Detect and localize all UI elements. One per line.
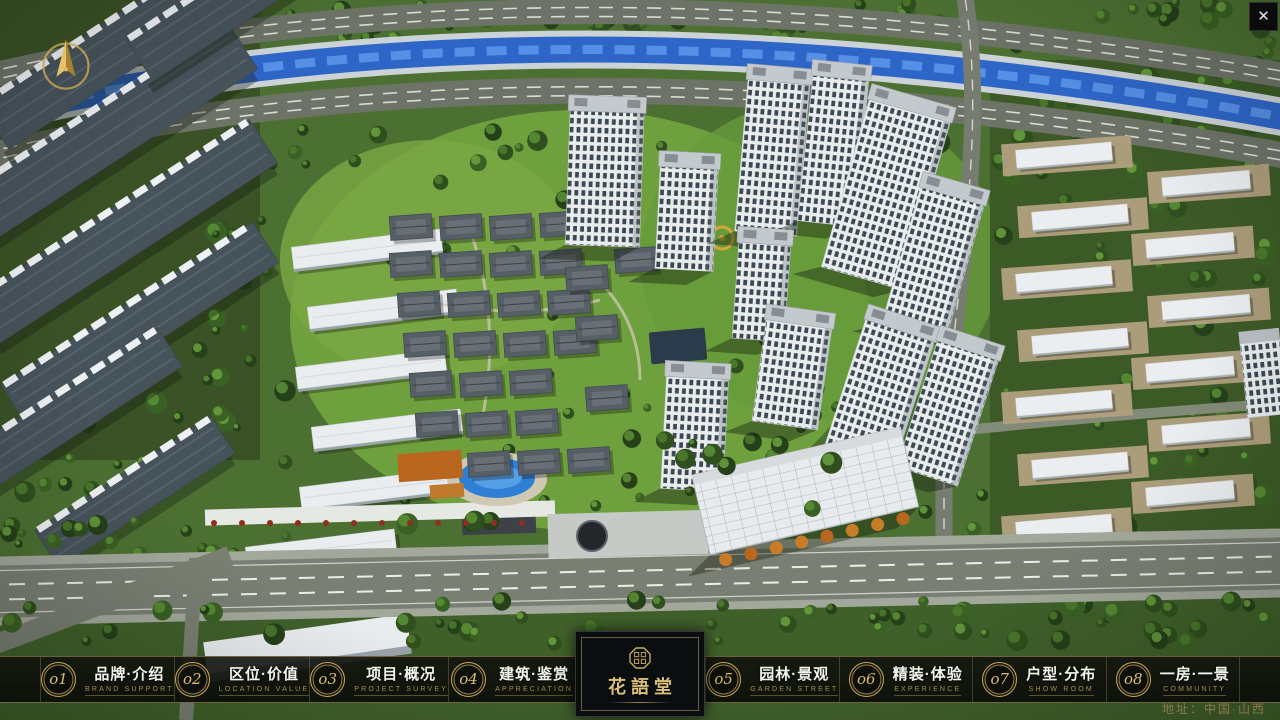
menu-group-left: o1 品牌·介绍 BRAND SUPPORT o2 区位·价值 LOCATION… — [0, 657, 575, 702]
sales-presentation-screen: ✕ o1 品牌·介绍 BRAND SUPPORT o2 区位·价值 LOCATI… — [0, 0, 1280, 720]
menu-subtitle: GARDEN STREET — [750, 686, 838, 696]
menu-number-badge: o2 — [175, 662, 210, 697]
menu-item-garden[interactable]: o5 园林·景观 GARDEN STREET — [705, 657, 839, 702]
menu-number-badge: o8 — [1116, 662, 1151, 697]
menu-number: o2 — [183, 670, 202, 688]
menu-number: o7 — [990, 670, 1009, 688]
menu-group-right: o5 园林·景观 GARDEN STREET o6 精装·体验 EXPERIEN… — [705, 657, 1280, 702]
menu-title: 一房·一景 — [1160, 663, 1230, 684]
menu-number: o1 — [49, 670, 68, 688]
menu-number-badge: o7 — [982, 662, 1017, 697]
menu-subtitle: EXPERIENCE — [894, 686, 961, 696]
menu-text: 建筑·鉴赏 APPRECIATION — [495, 663, 573, 696]
menu-number-badge: o6 — [849, 662, 884, 697]
menu-title: 精装·体验 — [893, 663, 963, 684]
bottom-menu-bar: o1 品牌·介绍 BRAND SUPPORT o2 区位·价值 LOCATION… — [0, 656, 1280, 703]
menu-number: o5 — [714, 670, 733, 688]
menu-text: 项目·概况 PROJECT SURVEY — [354, 663, 448, 696]
menu-item-project[interactable]: o3 项目·概况 PROJECT SURVEY — [309, 657, 448, 702]
menu-text: 品牌·介绍 BRAND SUPPORT — [85, 663, 174, 696]
menu-title: 品牌·介绍 — [94, 663, 164, 684]
menu-item-interior[interactable]: o6 精装·体验 EXPERIENCE — [839, 657, 973, 702]
menu-number: o4 — [459, 670, 478, 688]
menu-subtitle: LOCATION VALUE — [219, 686, 309, 696]
menu-item-location[interactable]: o2 区位·价值 LOCATION VALUE — [174, 657, 309, 702]
menu-subtitle: BRAND SUPPORT — [85, 686, 174, 696]
menu-text: 精装·体验 EXPERIENCE — [893, 663, 963, 696]
aerial-masterplan-render — [0, 0, 1280, 720]
menu-title: 建筑·鉴赏 — [499, 663, 569, 684]
menu-text: 一房·一景 COMMUNITY — [1160, 663, 1230, 696]
project-logo-panel[interactable]: 花語堂 — [575, 631, 705, 717]
menu-title: 户型·分布 — [1026, 663, 1096, 684]
menu-number-badge: o1 — [41, 662, 76, 697]
seal-icon — [628, 646, 652, 670]
menu-number-badge: o3 — [310, 662, 345, 697]
menu-subtitle: COMMUNITY — [1163, 686, 1226, 696]
menu-item-views[interactable]: o8 一房·一景 COMMUNITY — [1106, 657, 1241, 702]
logo-frame: 花語堂 — [581, 637, 699, 711]
project-address: 地址：中国·山西 — [1162, 700, 1266, 717]
menu-subtitle: APPRECIATION — [495, 686, 573, 696]
menu-number: o8 — [1124, 670, 1143, 688]
menu-item-brand[interactable]: o1 品牌·介绍 BRAND SUPPORT — [40, 657, 174, 702]
menu-number-badge: o5 — [706, 662, 741, 697]
close-icon: ✕ — [1257, 9, 1270, 24]
logo-name: 花語堂 — [608, 673, 677, 699]
menu-number-badge: o4 — [451, 662, 486, 697]
menu-title: 项目·概况 — [366, 663, 436, 684]
menu-text: 园林·景观 GARDEN STREET — [750, 663, 838, 696]
menu-subtitle: SHOW ROOM — [1029, 686, 1094, 696]
menu-item-architecture[interactable]: o4 建筑·鉴赏 APPRECIATION — [448, 657, 575, 702]
menu-title: 园林·景观 — [759, 663, 829, 684]
close-button[interactable]: ✕ — [1249, 2, 1278, 31]
north-compass-icon — [36, 34, 96, 94]
menu-text: 区位·价值 LOCATION VALUE — [219, 663, 309, 696]
menu-text: 户型·分布 SHOW ROOM — [1026, 663, 1096, 696]
menu-number: o3 — [318, 670, 337, 688]
menu-title: 区位·价值 — [229, 663, 299, 684]
menu-subtitle: PROJECT SURVEY — [354, 686, 448, 696]
menu-item-floorplan[interactable]: o7 户型·分布 SHOW ROOM — [972, 657, 1106, 702]
menu-number: o6 — [857, 670, 876, 688]
logo-divider — [609, 702, 671, 703]
